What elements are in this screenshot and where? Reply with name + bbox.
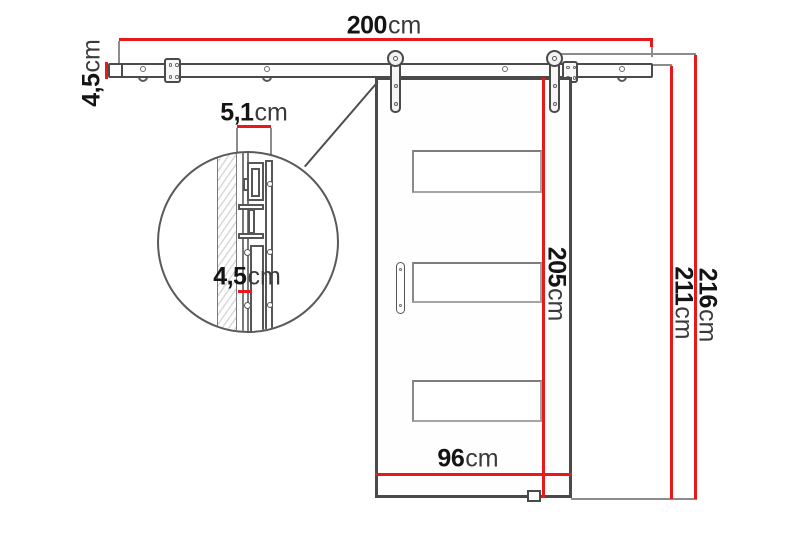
dim-label-overall-height: 216cm xyxy=(695,268,720,343)
handle-screw-dot xyxy=(399,268,402,271)
detail-bolt xyxy=(267,302,273,308)
dim-line-door-width-96 xyxy=(375,473,572,476)
dim-line-rail-width-end-tick xyxy=(650,38,653,47)
detail-axle-tab xyxy=(243,178,249,191)
dim-label-door-height: 205cm xyxy=(544,247,569,322)
rail-end-cap-divider xyxy=(121,64,123,77)
dimension-drawing: 200cm 4,5cm 5,1cm 4,5cm 205cm 96cm 211cm… xyxy=(0,0,800,533)
dim-label-detail-width: 5,1cm xyxy=(220,101,288,126)
detail-rail-flange-bottom xyxy=(238,233,264,239)
ext-line-rail-left xyxy=(118,41,120,63)
detail-leader-line xyxy=(304,81,378,167)
bracket-screw-dot xyxy=(169,75,173,79)
hanger-roller-right xyxy=(546,50,563,67)
hanger-roller-left xyxy=(387,50,404,67)
strap-bolt-dot xyxy=(553,84,557,88)
detail-roller-wheel xyxy=(251,168,260,197)
detail-bolt xyxy=(244,302,251,309)
rail-screw xyxy=(502,66,508,72)
door-window-top xyxy=(412,150,542,193)
strap-bolt-dot xyxy=(394,102,398,106)
mount-bracket-left xyxy=(164,58,181,83)
bracket-screw-dot xyxy=(566,66,570,70)
dim-label-door-width: 96cm xyxy=(437,447,498,472)
bracket-screw-dot xyxy=(175,63,179,67)
ext-line-overall-height xyxy=(561,53,696,55)
detail-circle xyxy=(157,151,339,333)
dim-label-rail-height: 4,5cm xyxy=(80,39,105,107)
detail-bolt xyxy=(244,249,251,256)
handle-screw-dot xyxy=(399,304,402,307)
bracket-screw-dot xyxy=(573,76,577,80)
dim-label-detail-height: 4,5cm xyxy=(213,265,281,290)
strap-bolt-dot xyxy=(553,102,557,106)
wall-hatch-section xyxy=(217,153,237,333)
detail-bolt xyxy=(267,181,273,187)
door-handle xyxy=(396,262,405,314)
door-window-bottom xyxy=(412,380,542,422)
rail-screw xyxy=(140,66,146,72)
dim-label-rail-width: 200cm xyxy=(347,14,422,39)
roller-hub xyxy=(393,56,398,61)
strap-bolt-dot xyxy=(394,84,398,88)
rail-screw xyxy=(619,66,625,72)
dim-label-height-to-rail: 211cm xyxy=(671,266,696,339)
bracket-screw-dot xyxy=(175,75,179,79)
bracket-screw-dot xyxy=(573,66,577,70)
detail-bolt xyxy=(267,249,273,255)
floor-guide-block xyxy=(527,490,541,502)
detail-rail-stem xyxy=(248,209,255,234)
door-window-middle xyxy=(412,262,542,303)
roller-hub xyxy=(552,56,557,61)
bracket-screw-dot xyxy=(169,63,173,67)
rail-screw xyxy=(264,66,270,72)
floor-line xyxy=(571,498,697,500)
